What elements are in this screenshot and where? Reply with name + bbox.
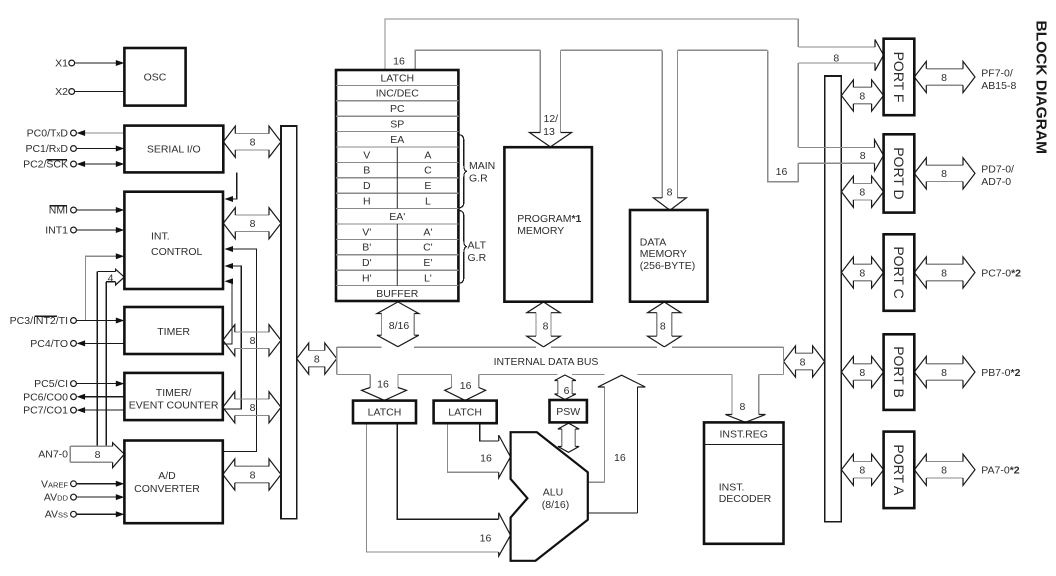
svg-text:G.R: G.R xyxy=(468,252,487,264)
svg-text:INT1: INT1 xyxy=(45,225,68,237)
svg-text:PA7-0*2: PA7-0*2 xyxy=(981,465,1019,477)
svg-text:D: D xyxy=(363,180,371,192)
svg-text:8/16: 8/16 xyxy=(389,320,410,332)
svg-text:8: 8 xyxy=(941,267,947,279)
svg-text:PSW: PSW xyxy=(556,406,580,418)
svg-text:BUFFER: BUFFER xyxy=(376,288,418,300)
svg-text:L: L xyxy=(425,196,431,208)
svg-text:PC0/TxD: PC0/TxD xyxy=(27,128,69,140)
svg-text:OSC: OSC xyxy=(144,72,167,84)
svg-text:INST.REG: INST.REG xyxy=(719,429,767,441)
svg-text:PC6/CO0: PC6/CO0 xyxy=(23,391,68,403)
svg-text:ALU: ALU xyxy=(543,487,563,499)
svg-text:ALT: ALT xyxy=(468,240,487,252)
svg-text:LATCH: LATCH xyxy=(368,407,402,419)
svg-text:8: 8 xyxy=(941,465,947,477)
svg-text:8: 8 xyxy=(833,53,839,65)
svg-text:B': B' xyxy=(362,242,371,254)
svg-text:AVDD: AVDD xyxy=(44,492,69,504)
svg-text:PORT F: PORT F xyxy=(891,52,907,103)
svg-text:8: 8 xyxy=(859,267,865,279)
svg-text:LATCH: LATCH xyxy=(380,72,414,84)
svg-text:EA': EA' xyxy=(389,211,405,223)
svg-text:PB7-0*2: PB7-0*2 xyxy=(981,367,1020,379)
svg-text:16: 16 xyxy=(480,533,492,545)
svg-text:EVENT COUNTER: EVENT COUNTER xyxy=(129,399,219,411)
svg-text:TIMER/: TIMER/ xyxy=(156,387,192,399)
svg-text:8: 8 xyxy=(250,218,256,230)
svg-text:AB15-8: AB15-8 xyxy=(981,80,1016,92)
svg-text:PC4/TO: PC4/TO xyxy=(30,338,68,350)
svg-text:PC5/CI: PC5/CI xyxy=(34,378,68,390)
svg-text:MEMORY: MEMORY xyxy=(517,225,564,237)
svg-text:8: 8 xyxy=(859,367,865,379)
svg-text:6: 6 xyxy=(564,385,570,397)
svg-text:8: 8 xyxy=(250,335,256,347)
svg-text:8: 8 xyxy=(941,72,947,84)
svg-text:EA: EA xyxy=(390,134,404,146)
svg-text:INTERNAL DATA BUS: INTERNAL DATA BUS xyxy=(494,356,599,368)
svg-text:PORT A: PORT A xyxy=(891,444,907,496)
svg-text:16: 16 xyxy=(776,166,788,178)
svg-text:PC7/CO1: PC7/CO1 xyxy=(23,405,68,417)
svg-text:8: 8 xyxy=(941,367,947,379)
svg-text:13: 13 xyxy=(543,126,555,138)
svg-text:8: 8 xyxy=(860,150,866,162)
svg-text:L': L' xyxy=(424,273,432,285)
svg-text:8: 8 xyxy=(859,187,865,199)
svg-text:16: 16 xyxy=(614,452,626,464)
svg-text:AD7-0: AD7-0 xyxy=(981,176,1011,188)
svg-text:8: 8 xyxy=(660,321,666,333)
svg-text:AVSS: AVSS xyxy=(45,509,68,521)
svg-text:INT.: INT. xyxy=(151,231,170,243)
svg-text:A: A xyxy=(424,149,431,161)
svg-text:PC1/RxD: PC1/RxD xyxy=(25,143,68,155)
svg-text:INC/DEC: INC/DEC xyxy=(376,88,420,100)
svg-text:A/D: A/D xyxy=(158,470,176,482)
svg-text:AN7-0: AN7-0 xyxy=(38,449,68,461)
svg-text:PC7-0*2: PC7-0*2 xyxy=(981,267,1021,279)
svg-text:8: 8 xyxy=(859,90,865,102)
svg-text:E: E xyxy=(424,180,431,192)
svg-text:V': V' xyxy=(362,226,371,238)
svg-text:8: 8 xyxy=(800,356,806,368)
svg-text:PD7-0/: PD7-0/ xyxy=(981,164,1014,176)
svg-text:8: 8 xyxy=(543,321,549,333)
svg-text:4: 4 xyxy=(108,272,114,284)
svg-text:CONVERTER: CONVERTER xyxy=(134,483,200,495)
svg-text:V: V xyxy=(363,149,370,161)
svg-text:SERIAL I/O: SERIAL I/O xyxy=(147,144,201,156)
svg-text:LATCH: LATCH xyxy=(448,407,482,419)
svg-text:16: 16 xyxy=(480,453,492,465)
svg-text:8: 8 xyxy=(667,187,673,199)
svg-text:PC: PC xyxy=(390,103,405,115)
svg-text:8: 8 xyxy=(859,465,865,477)
svg-text:8: 8 xyxy=(739,401,745,413)
svg-text:DECODER: DECODER xyxy=(719,493,772,505)
svg-text:8: 8 xyxy=(250,137,256,149)
svg-text:TIMER: TIMER xyxy=(157,326,190,338)
svg-text:SP: SP xyxy=(390,119,404,131)
svg-text:CONTROL: CONTROL xyxy=(151,246,202,258)
svg-text:8: 8 xyxy=(250,469,256,481)
svg-text:BLOCK DIAGRAM: BLOCK DIAGRAM xyxy=(1032,21,1049,155)
svg-text:(8/16): (8/16) xyxy=(542,499,569,511)
svg-text:16: 16 xyxy=(393,56,405,68)
svg-text:8: 8 xyxy=(314,353,320,365)
svg-text:VAREF: VAREF xyxy=(41,478,68,490)
svg-text:16: 16 xyxy=(377,378,389,390)
svg-text:X2: X2 xyxy=(55,86,68,98)
svg-text:A': A' xyxy=(423,226,432,238)
svg-text:8: 8 xyxy=(250,402,256,414)
svg-text:DATA: DATA xyxy=(640,237,666,249)
svg-text:E': E' xyxy=(423,257,432,269)
svg-text:PROGRAM*1: PROGRAM*1 xyxy=(517,213,581,225)
svg-text:12/: 12/ xyxy=(543,113,558,125)
svg-text:MEMORY: MEMORY xyxy=(640,248,687,260)
svg-text:PORT B: PORT B xyxy=(891,346,907,398)
svg-text:8: 8 xyxy=(95,449,101,461)
svg-text:MAIN: MAIN xyxy=(469,160,495,172)
svg-text:(256-BYTE): (256-BYTE) xyxy=(640,260,695,272)
svg-text:H: H xyxy=(363,196,371,208)
svg-text:PORT C: PORT C xyxy=(891,246,907,298)
svg-text:INST.: INST. xyxy=(719,482,745,494)
svg-text:D': D' xyxy=(362,257,372,269)
svg-text:PORT D: PORT D xyxy=(891,147,907,199)
svg-text:8: 8 xyxy=(941,168,947,180)
svg-text:G.R: G.R xyxy=(469,173,488,185)
svg-text:C: C xyxy=(424,165,432,177)
svg-text:16: 16 xyxy=(460,380,472,392)
svg-text:X1: X1 xyxy=(55,58,68,70)
svg-text:PF7-0/: PF7-0/ xyxy=(981,67,1013,79)
svg-text:B: B xyxy=(363,165,370,177)
svg-text:C': C' xyxy=(423,242,433,254)
svg-text:H': H' xyxy=(362,273,372,285)
